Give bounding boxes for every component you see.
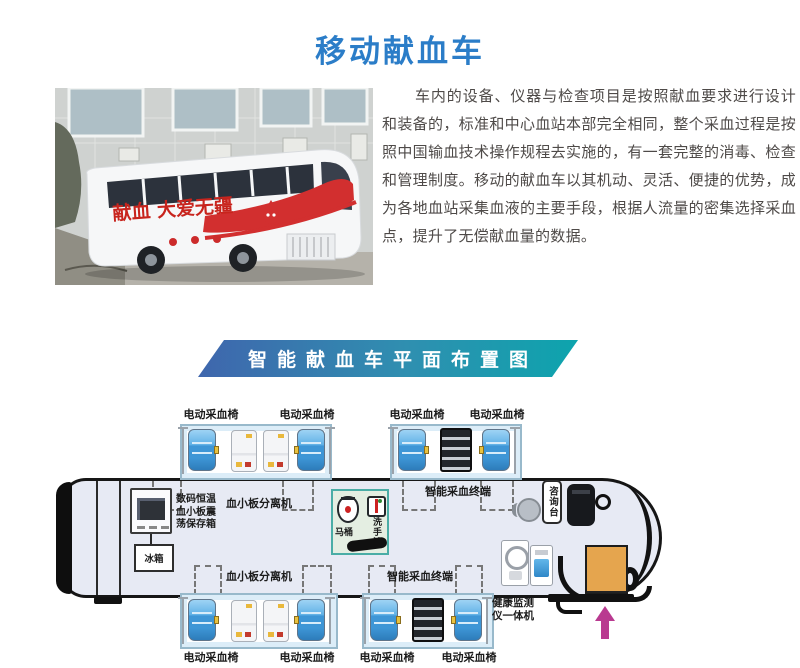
chair-label: 电动采血椅 <box>267 406 347 422</box>
partition-stub <box>150 534 152 544</box>
health-monitor-machine-icon <box>501 540 529 586</box>
consult-desk: 咨询台 <box>542 480 562 524</box>
smart-terminal-label: 智能采血终端 <box>387 568 453 584</box>
entrance-arrow-icon <box>594 606 616 642</box>
door-opening <box>455 565 483 595</box>
floor-plan: 电动采血椅 电动采血椅 电动采血椅 电动采血椅 电动采血椅 电动采血椅 电动采血… <box>0 398 800 668</box>
door-opening <box>194 565 222 595</box>
swivel-chair-icon <box>517 498 541 522</box>
platelet-storage-box-icon <box>130 488 172 534</box>
donor-chair-icon <box>188 599 216 641</box>
terminal-machine-icon <box>440 428 472 472</box>
bus-photo: 献血 大爱无疆 <box>55 88 373 285</box>
terminal-machine-icon <box>412 598 444 642</box>
partition-wall <box>96 481 98 595</box>
chair-label: 电动采血椅 <box>377 406 457 422</box>
health-monitor-kiosk-icon <box>530 545 553 586</box>
chair-label: 电动采血椅 <box>347 649 427 665</box>
separator-machine-icon <box>231 600 257 642</box>
section-banner-title: 智能献血车平面布置图 <box>238 345 538 372</box>
door-opening <box>302 565 332 595</box>
donor-chair-icon <box>297 429 325 471</box>
platelet-storage-box-label: 数码恒温 血小板震 荡保存箱 <box>176 494 216 532</box>
platelet-separator-label: 血小板分离机 <box>226 568 292 584</box>
front-bumper-trim <box>610 586 652 602</box>
driver-seat-icon <box>567 484 595 526</box>
platelet-separator-label: 血小板分离机 <box>226 495 292 511</box>
fridge-label: 冰箱 <box>134 544 174 572</box>
chair-label: 电动采血椅 <box>267 649 347 665</box>
health-monitor-label: 健康监测 仪一体机 <box>492 597 534 622</box>
intro-paragraph: 车内的设备、仪器与检查项目是按照献血要求进行设计和装备的，标准和中心血站本部完全… <box>382 82 796 250</box>
toilet-room: 马桶 洗手池 <box>331 489 389 555</box>
donor-chair-icon <box>370 599 398 641</box>
donor-chair-icon <box>482 429 510 471</box>
separator-machine-icon <box>231 430 257 472</box>
donor-chair-icon <box>454 599 482 641</box>
separator-machine-icon <box>263 600 289 642</box>
donor-chair-icon <box>297 599 325 641</box>
page: 移动献血车 <box>0 0 800 668</box>
section-banner: 智能献血车平面布置图 <box>198 340 578 377</box>
toilet-label: 马桶 <box>335 525 353 538</box>
donor-chair-icon <box>398 429 426 471</box>
bus-rear-cap <box>56 482 72 594</box>
consult-desk-label: 咨询台 <box>545 486 559 518</box>
toilet-icon <box>337 496 359 523</box>
partition-wall <box>119 481 121 595</box>
smart-terminal-label: 智能采血终端 <box>425 483 491 499</box>
donor-chair-icon <box>188 429 216 471</box>
rear-bumper-stub <box>94 597 122 604</box>
mirror-arm <box>556 601 582 614</box>
separator-machine-icon <box>263 430 289 472</box>
chair-label: 电动采血椅 <box>171 406 251 422</box>
chair-label: 电动采血椅 <box>457 406 537 422</box>
bus-photo-illustration: 献血 大爱无疆 <box>55 88 373 285</box>
page-title: 移动献血车 <box>0 26 800 71</box>
sink-icon <box>367 496 386 517</box>
chair-label: 电动采血椅 <box>171 649 251 665</box>
chair-label: 电动采血椅 <box>429 649 509 665</box>
